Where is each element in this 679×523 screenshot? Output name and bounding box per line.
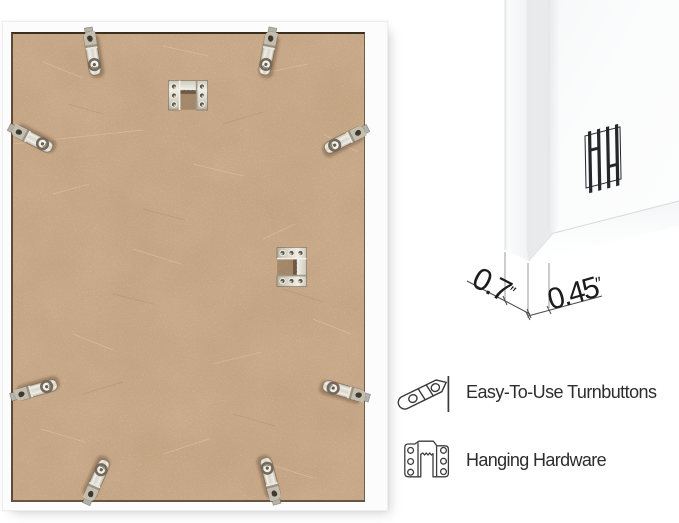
svg-text:0.7″: 0.7″	[467, 260, 521, 311]
svg-text:0.45″: 0.45″	[544, 269, 607, 316]
